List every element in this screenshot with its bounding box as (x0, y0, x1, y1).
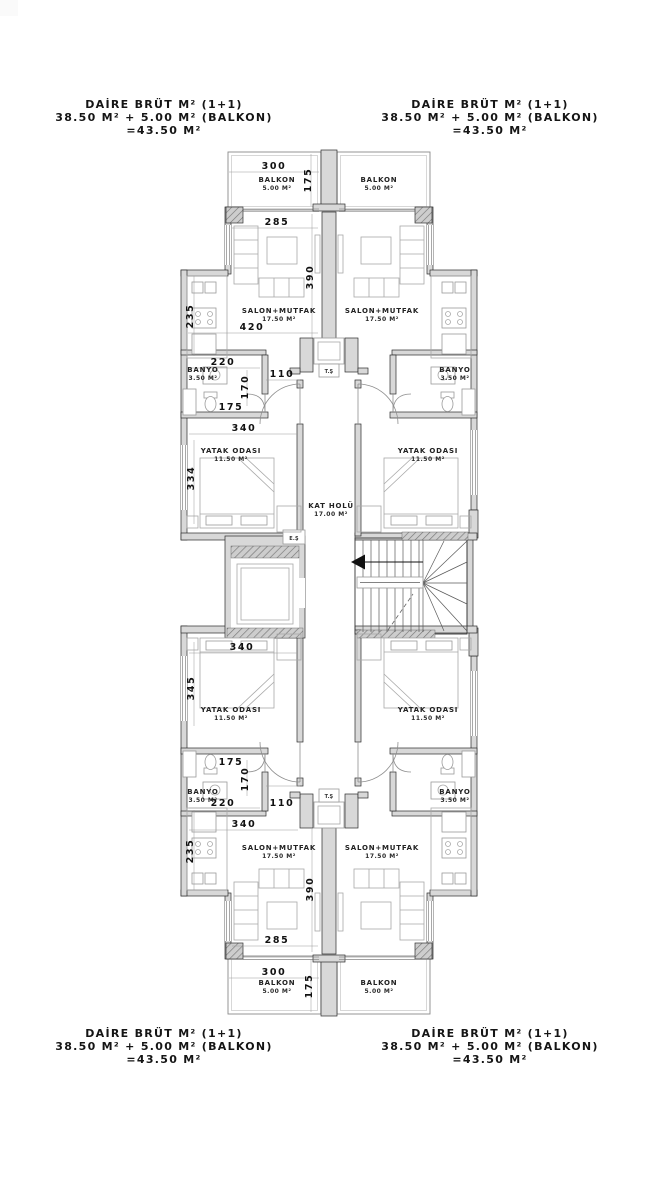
dim-340-bedroom-top: 340 (232, 423, 257, 434)
summary-line3: =43.50 M² (452, 1053, 527, 1066)
summary-line3: =43.50 M² (452, 124, 527, 137)
room-balkon-br-name: BALKON (361, 979, 398, 987)
dim-175-balcony-top: 175 (303, 168, 314, 193)
elevator-shaft-label: E.Ş (289, 536, 299, 542)
room-salon-bl-name: SALON+MUTFAK (242, 844, 316, 852)
room-salon-tr-area: 17.50 M² (365, 316, 399, 323)
utility-shaft-label-top: T.Ş (325, 369, 334, 375)
room-balkon-tr-name: BALKON (361, 176, 398, 184)
room-yatak-tl-area: 11.50 M² (214, 456, 248, 463)
dim-420-top: 420 (240, 322, 265, 333)
dim-110-top: 110 (270, 369, 295, 380)
room-balkon-tl-name: BALKON (259, 176, 296, 184)
dim-340-salon-bottom: 340 (232, 819, 257, 830)
room-salon-br-name: SALON+MUTFAK (345, 844, 419, 852)
dim-390-top: 390 (305, 265, 316, 290)
room-banyo-bl-area: 3.50 M² (189, 797, 218, 804)
room-yatak-bl-area: 11.50 M² (214, 715, 248, 722)
dim-175-hall-bottom: 175 (219, 757, 244, 768)
room-hol-area: 17.00 M² (314, 511, 348, 518)
room-banyo-tr-name: BANYO (439, 366, 470, 374)
room-salon-br-area: 17.50 M² (365, 853, 399, 860)
room-salon-tl-name: SALON+MUTFAK (242, 307, 316, 315)
room-banyo-tl-name: BANYO (187, 366, 218, 374)
room-balkon-bl-name: BALKON (259, 979, 296, 987)
dim-300-top: 300 (262, 161, 287, 172)
unit-summary-top-left: DAİRE BRÜT M² (1+1) 38.50 M² + 5.00 M² (… (55, 97, 272, 137)
dim-390-bottom: 390 (305, 877, 316, 902)
dim-285-top: 285 (265, 217, 290, 228)
utility-shaft-label-bottom: T.Ş (325, 794, 334, 800)
room-salon-tr-name: SALON+MUTFAK (345, 307, 419, 315)
dim-110-bottom: 110 (270, 798, 295, 809)
dim-170-bottom: 170 (240, 767, 251, 792)
summary-line3: =43.50 M² (126, 124, 201, 137)
summary-line1: DAİRE BRÜT M² (1+1) (85, 97, 243, 111)
room-balkon-tl-area: 5.00 M² (263, 185, 292, 192)
dim-345-bedroom-bottom: 345 (186, 676, 197, 701)
unit-summary-bottom-left: DAİRE BRÜT M² (1+1) 38.50 M² + 5.00 M² (… (55, 1026, 272, 1066)
room-yatak-br-name: YATAK ODASI (397, 706, 458, 714)
dim-285-bottom: 285 (265, 935, 290, 946)
floor-plan-page: DAİRE BRÜT M² (1+1) 38.50 M² + 5.00 M² (… (0, 0, 658, 1200)
room-yatak-tr-area: 11.50 M² (411, 456, 445, 463)
room-banyo-tr-area: 3.50 M² (441, 375, 470, 382)
elevator: E.Ş (225, 530, 305, 638)
unit-summary-bottom-right: DAİRE BRÜT M² (1+1) 38.50 M² + 5.00 M² (… (381, 1026, 598, 1066)
room-yatak-tr-name: YATAK ODASI (397, 447, 458, 455)
stair-direction-arrow (351, 555, 365, 570)
room-salon-bl-area: 17.50 M² (262, 853, 296, 860)
summary-line1: DAİRE BRÜT M² (1+1) (85, 1026, 243, 1040)
summary-line2: 38.50 M² + 5.00 M² (BALKON) (381, 111, 598, 124)
room-yatak-br-area: 11.50 M² (411, 715, 445, 722)
unit-summary-top-right: DAİRE BRÜT M² (1+1) 38.50 M² + 5.00 M² (… (381, 97, 598, 137)
page-corner-artifact (0, 0, 18, 16)
room-salon-tl-area: 17.50 M² (262, 316, 296, 323)
dim-175-hall-top: 175 (219, 402, 244, 413)
room-balkon-bl-area: 5.00 M² (263, 988, 292, 995)
room-balkon-tr-area: 5.00 M² (365, 185, 394, 192)
dim-235-bottom: 235 (185, 839, 196, 864)
room-yatak-tl-name: YATAK ODASI (200, 447, 261, 455)
dim-340-bedroom-bottom: 340 (230, 642, 255, 653)
summary-line2: 38.50 M² + 5.00 M² (BALKON) (55, 111, 272, 124)
dim-175-balcony-bottom: 175 (304, 974, 315, 999)
room-banyo-br-name: BANYO (439, 788, 470, 796)
room-banyo-tl-area: 3.50 M² (189, 375, 218, 382)
dim-170-top: 170 (240, 375, 251, 400)
summary-line1: DAİRE BRÜT M² (1+1) (411, 97, 569, 111)
room-banyo-bl-name: BANYO (187, 788, 218, 796)
stairs (351, 532, 468, 638)
summary-line2: 38.50 M² + 5.00 M² (BALKON) (381, 1040, 598, 1053)
room-hol-name: KAT HOLÜ (308, 501, 354, 510)
floor-plan-drawing: DAİRE BRÜT M² (1+1) 38.50 M² + 5.00 M² (… (0, 0, 658, 1200)
room-yatak-bl-name: YATAK ODASI (200, 706, 261, 714)
summary-line1: DAİRE BRÜT M² (1+1) (411, 1026, 569, 1040)
dim-300-bottom: 300 (262, 967, 287, 978)
dim-334-bedroom-top: 334 (186, 466, 197, 491)
room-balkon-br-area: 5.00 M² (365, 988, 394, 995)
summary-line3: =43.50 M² (126, 1053, 201, 1066)
room-banyo-br-area: 3.50 M² (441, 797, 470, 804)
summary-line2: 38.50 M² + 5.00 M² (BALKON) (55, 1040, 272, 1053)
dim-235-top: 235 (185, 304, 196, 329)
